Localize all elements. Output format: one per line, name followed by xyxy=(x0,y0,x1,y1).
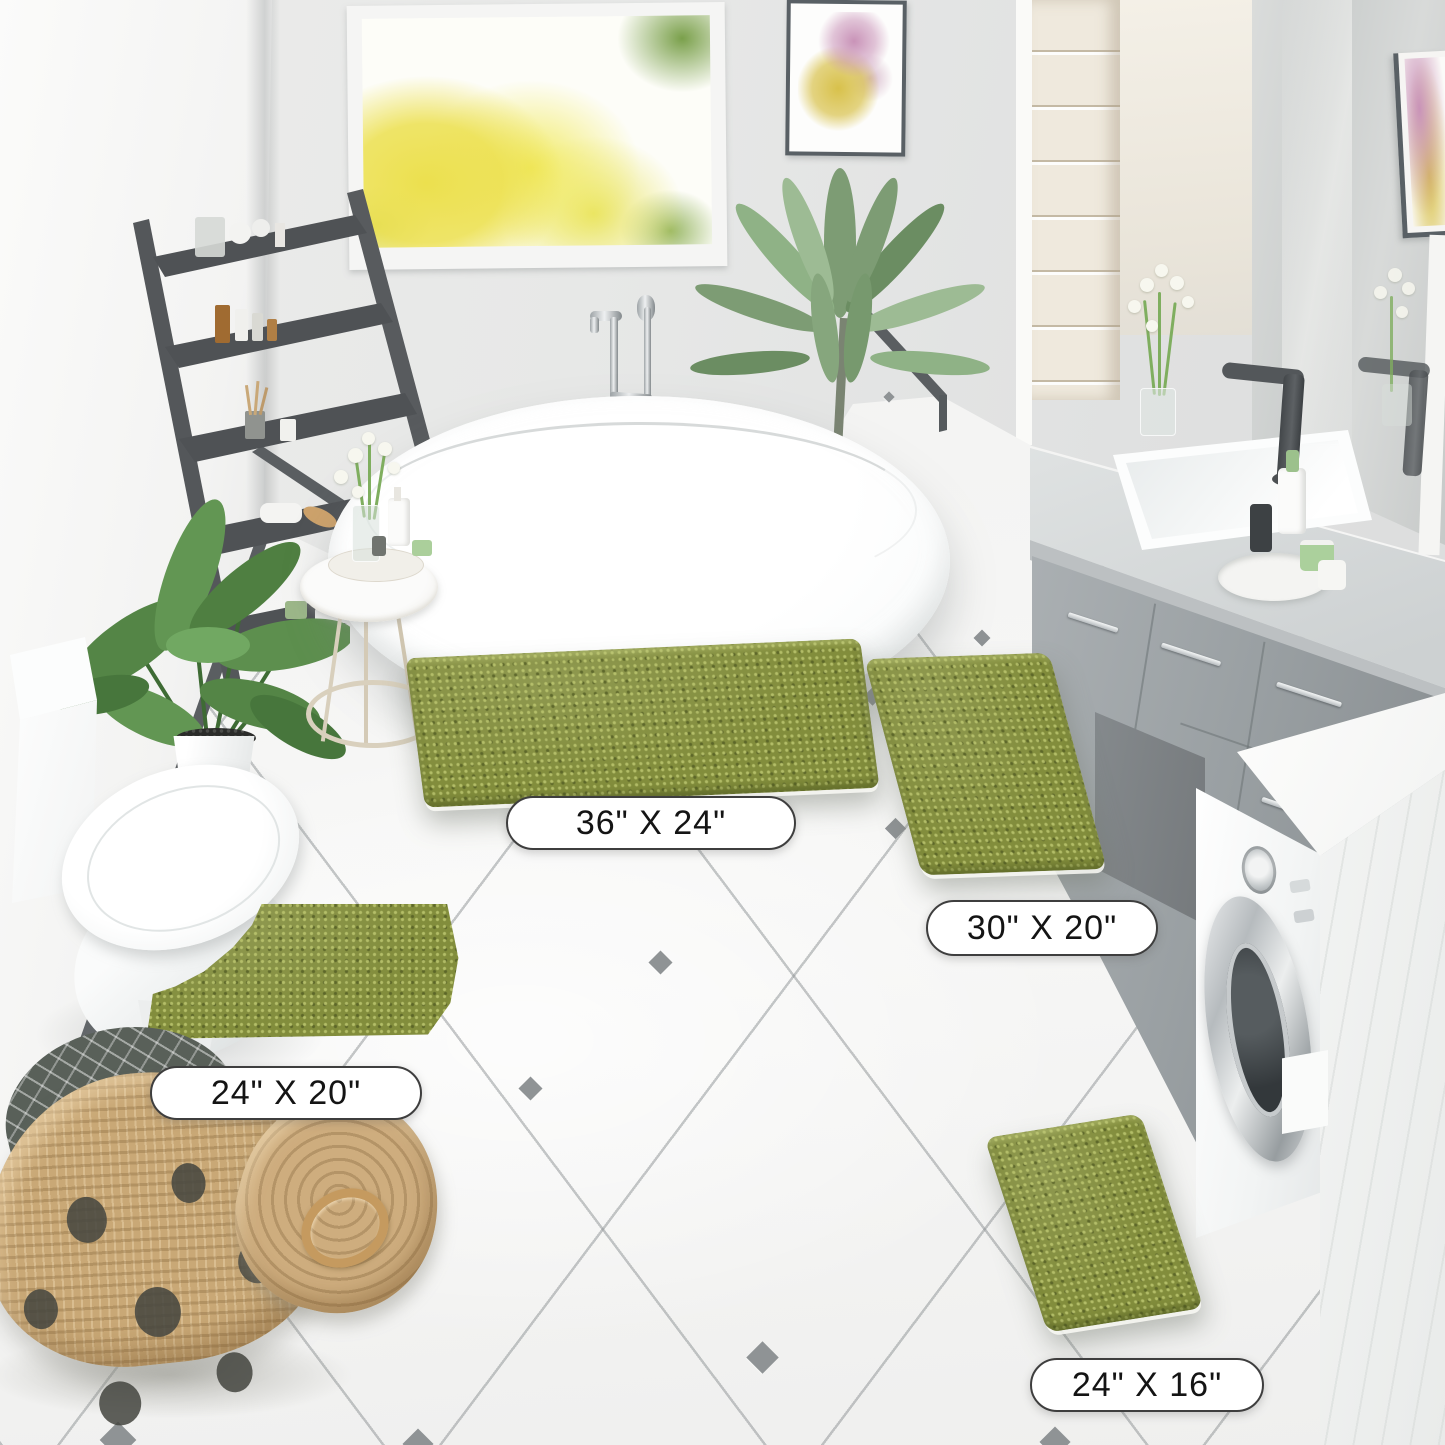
white-cosmetic-jar xyxy=(1318,560,1346,590)
size-label-text: 30" X 20" xyxy=(967,909,1117,948)
counter-flower-blossom xyxy=(1182,296,1194,308)
tub-faucet-spout-tip xyxy=(590,317,599,333)
counter-flower-stem xyxy=(1158,292,1161,396)
mirrored-flower-stem xyxy=(1390,296,1393,392)
lotion-pump xyxy=(394,487,401,501)
size-label-text: 24" X 16" xyxy=(1072,1366,1222,1405)
flower-blossom xyxy=(362,432,375,445)
mirrored-flower-blossom xyxy=(1388,268,1402,282)
lotion-pump-green xyxy=(1286,450,1299,472)
cabinet-handle xyxy=(1161,643,1222,667)
counter-flower-blossom xyxy=(1155,264,1168,277)
dark-soap-dispenser xyxy=(1250,504,1272,552)
basket-dot xyxy=(65,1195,110,1245)
size-label-text: 24" X 20" xyxy=(211,1074,361,1113)
lotion-bottle-counter xyxy=(1278,468,1306,534)
mirrored-flower-blossom xyxy=(1374,286,1387,299)
flower-blossom xyxy=(352,486,364,498)
size-label-24x16: 24" X 16" xyxy=(1030,1358,1264,1412)
size-label-text: 36" X 24" xyxy=(576,804,726,843)
counter-flower-blossom xyxy=(1146,320,1158,332)
size-label-36x24: 36" X 24" xyxy=(506,796,796,850)
basket-dot xyxy=(22,1287,60,1330)
flower-blossom xyxy=(334,470,348,484)
flower-blossom xyxy=(348,448,363,463)
basket-dot xyxy=(170,1161,208,1204)
large-rug-36x24 xyxy=(405,638,879,807)
counter-flower-blossom xyxy=(1170,276,1184,290)
lotion-bottle xyxy=(388,498,410,546)
size-label-30x20: 30" X 20" xyxy=(926,900,1158,956)
mirrored-flower-blossom xyxy=(1396,306,1408,318)
basket-dot xyxy=(132,1285,183,1340)
white-cabinet-ledge xyxy=(1282,1050,1328,1134)
flower-blossom xyxy=(388,462,400,474)
mirrored-glass-vase xyxy=(1382,384,1412,426)
counter-flower-blossom xyxy=(1140,278,1154,292)
counter-flower-blossom xyxy=(1128,300,1141,313)
white-cabinet xyxy=(1230,688,1445,1445)
cabinet-handle xyxy=(1068,612,1119,633)
green-jar xyxy=(412,540,432,556)
bathtub-inner-rim xyxy=(365,422,916,599)
size-label-24x20: 24" X 20" xyxy=(150,1066,422,1120)
mirrored-flower-blossom xyxy=(1402,282,1415,295)
dark-cosmetic-item xyxy=(372,536,386,556)
counter-glass-vase xyxy=(1140,388,1176,436)
bathroom-scene: 36" X 24" 30" X 20" 24" X 20" 24" X 16" xyxy=(0,0,1445,1445)
flower-blossom xyxy=(378,442,392,456)
